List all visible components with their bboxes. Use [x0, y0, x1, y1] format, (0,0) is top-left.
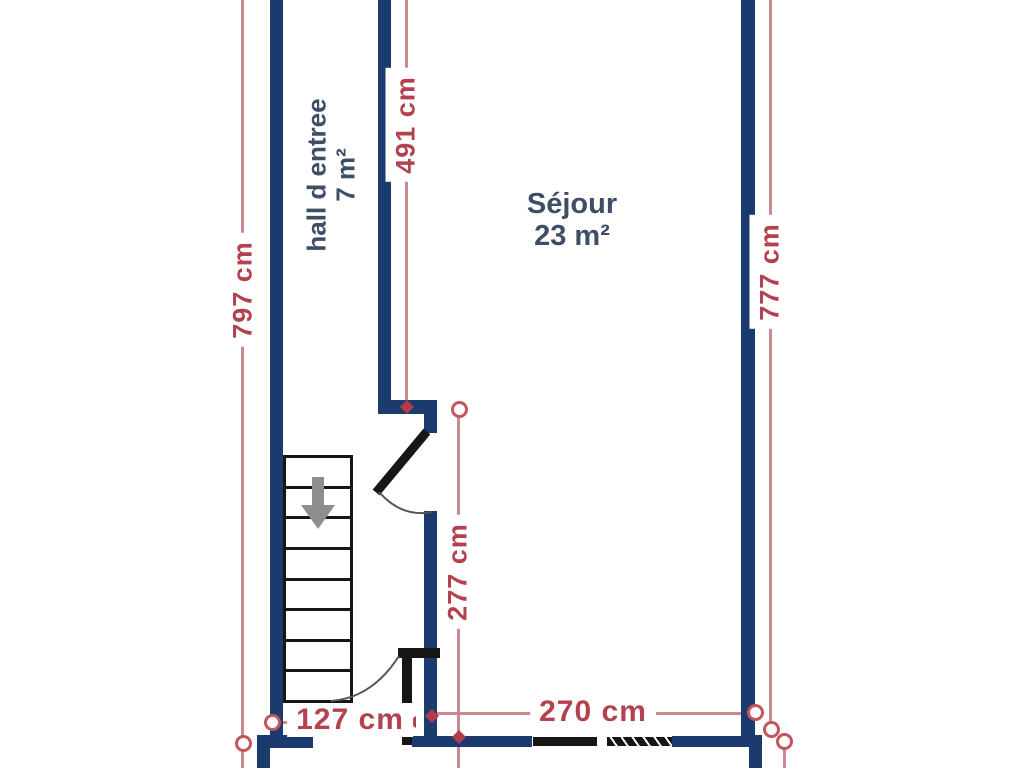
dimension-endpoint-circle [264, 714, 281, 731]
dimension-label-491: 491 cm [386, 68, 427, 182]
room-area-hall: 7 m² [331, 98, 360, 251]
dimension-label-127: 127 cm [287, 703, 413, 737]
room-label-sejour: Séjour 23 m² [527, 189, 617, 253]
dimension-line-491 [405, 0, 408, 407]
wall-bottom-main-left [412, 736, 532, 747]
stair-tread [286, 608, 350, 639]
room-label-hall: hall d entree 7 m² [302, 98, 359, 251]
wall-bottom-main-right [672, 736, 762, 747]
wall-sejour-left [424, 511, 437, 743]
wall-hall-right-upper [378, 0, 391, 414]
wall-jog-stub [424, 400, 437, 433]
dimension-line-797 [241, 0, 244, 768]
door-hall-sejour-leaf [379, 435, 424, 489]
dimension-label-277: 277 cm [438, 515, 479, 629]
stair-tread [286, 547, 350, 578]
room-area-sejour: 23 m² [527, 221, 617, 253]
plan-symbols-overlay [0, 0, 1024, 768]
wall-left-outer [270, 0, 283, 748]
dimension-line-777 [769, 0, 772, 727]
dimension-endpoint-circle [776, 733, 793, 750]
door-entry-cap [398, 648, 440, 658]
wall-right-outer [741, 0, 755, 744]
window-bottom-2 [607, 737, 672, 746]
stair-tread [286, 669, 350, 700]
floor-plan: 797 cm 491 cm 777 cm 277 cm 127 cm 270 c… [0, 0, 1024, 768]
room-name-sejour: Séjour [527, 189, 617, 221]
dimension-endpoint-circle [235, 735, 252, 752]
dimension-label-777: 777 cm [750, 215, 791, 329]
stair-direction-arrow-head [301, 505, 335, 529]
window-bottom-1 [533, 737, 597, 746]
stair-direction-arrow [312, 477, 324, 507]
dimension-endpoint-circle [747, 704, 764, 721]
stair-tread [286, 639, 350, 670]
dimension-label-270: 270 cm [530, 695, 656, 729]
room-name-hall: hall d entree [302, 98, 331, 251]
door-hall-sejour-arc [379, 492, 432, 513]
dimension-label-797: 797 cm [223, 233, 264, 347]
dimension-endpoint-circle [451, 401, 468, 418]
stair-tread [286, 578, 350, 609]
